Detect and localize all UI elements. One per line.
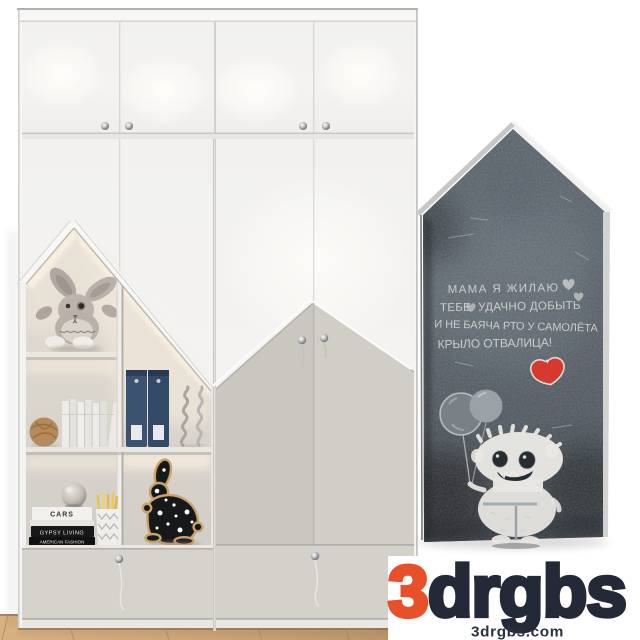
svg-text:ТЕБЕ. УДАЧНО ДОБЫТЬ: ТЕБЕ. УДАЧНО ДОБЫТЬ	[440, 300, 582, 314]
svg-text:CARS: CARS	[50, 512, 74, 519]
svg-text:МАМА Я ЖИЛАЮ: МАМА Я ЖИЛАЮ	[448, 282, 560, 296]
svg-text:3drgbs: 3drgbs	[388, 552, 626, 632]
svg-text:3drgbs.com: 3drgbs.com	[471, 625, 564, 640]
svg-text:GYPSY LIVING: GYPSY LIVING	[40, 531, 84, 537]
svg-text:КРЫЛО ОТВАЛИЦА!: КРЫЛО ОТВАЛИЦА!	[437, 335, 553, 351]
